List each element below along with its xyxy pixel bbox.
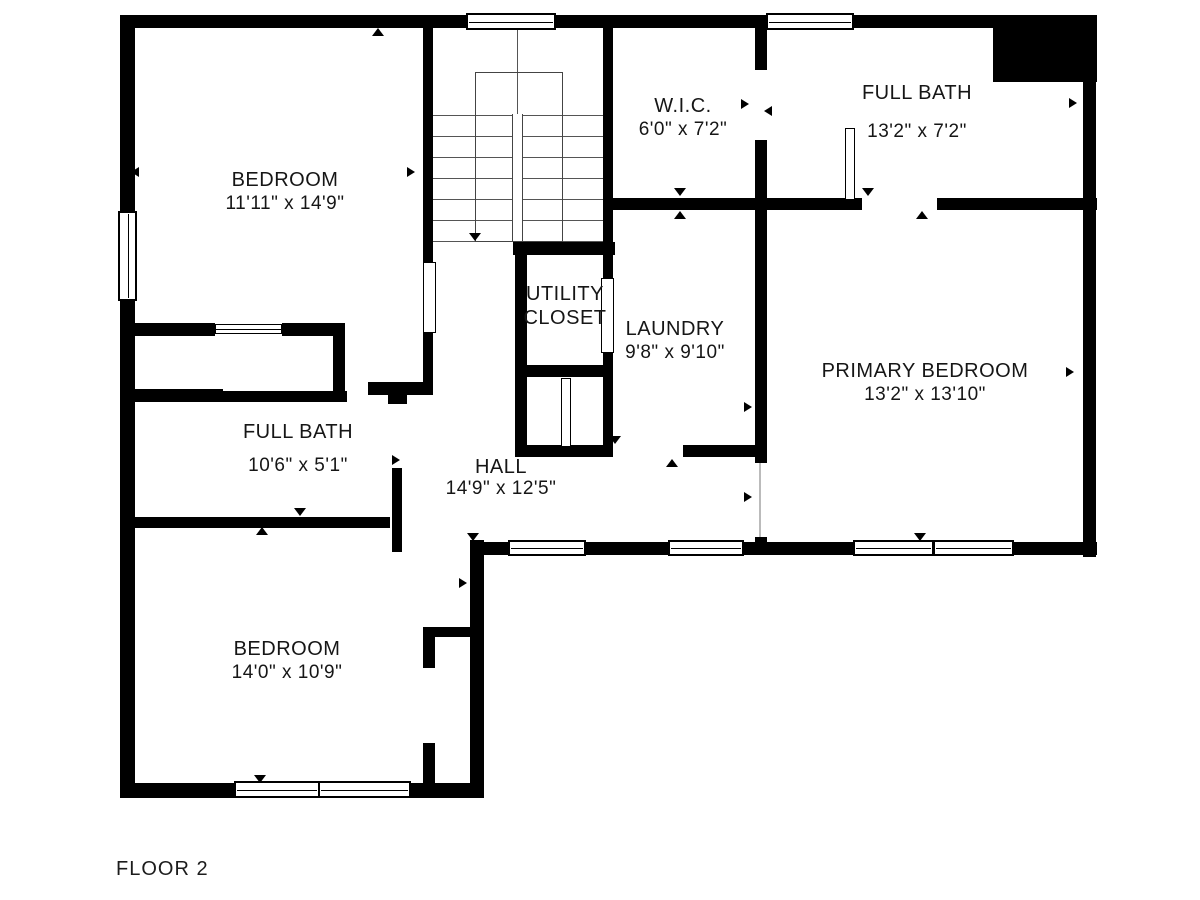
dimension-arrow: [764, 106, 772, 116]
room-label-full-bath-w: FULL BATH 10'6" x 5'1": [198, 420, 398, 478]
wall-utility-bottom: [515, 365, 613, 377]
dimension-arrow: [294, 508, 306, 516]
wall-wing-right: [470, 540, 484, 798]
floor-plan: BEDROOM 11'11" x 14'9" W.I.C. 6'0" x 7'2…: [0, 0, 1200, 900]
wall-primary-west-upper: [755, 210, 767, 463]
dimension-arrow: [674, 211, 686, 219]
room-name: W.I.C.: [603, 94, 763, 118]
room-name: LAUNDRY: [595, 317, 755, 341]
room-label-laundry: LAUNDRY 9'8" x 9'10": [595, 317, 755, 365]
door-leaf-hall-alcove: [561, 378, 571, 447]
wall-utility-west: [515, 242, 527, 453]
window: [508, 540, 586, 556]
room-dims: 9'8" x 9'10": [595, 341, 755, 365]
wall-sw-closet-upper: [423, 627, 435, 668]
wall-nw-closet-top-left: [133, 323, 215, 336]
wall-exterior-left: [120, 15, 135, 798]
wall-hall-junction-nib: [388, 395, 407, 404]
closet-slider-bedroom-nw: [215, 324, 282, 334]
room-label-bedroom-nw: BEDROOM 11'11" x 14'9": [165, 168, 405, 216]
room-name: UTILITY: [505, 282, 625, 306]
room-label-hall: HALL 14'9" x 12'5": [417, 456, 585, 500]
room-label-bedroom-sw: BEDROOM 14'0" x 10'9": [167, 637, 407, 685]
dimension-arrow: [758, 363, 766, 373]
wall-bath-south-east: [937, 198, 1097, 210]
wall-wic-bath-divider-upper: [755, 27, 767, 70]
wall-corner-block-ne: [993, 15, 1097, 82]
window: [466, 13, 556, 30]
dimension-arrow: [131, 167, 139, 177]
room-dims: 13'2" x 7'2": [817, 120, 1017, 144]
dimension-arrow: [1066, 367, 1074, 377]
room-dims: 13'2" x 13'10": [795, 383, 1055, 407]
stair-landing-outline: [475, 72, 563, 242]
room-name: BEDROOM: [167, 637, 407, 661]
room-name: HALL: [417, 456, 585, 478]
dimension-arrow: [122, 581, 130, 591]
wall-exterior-right: [1083, 15, 1096, 557]
wall-primary-west-stub: [755, 537, 767, 555]
room-label-full-bath-ne: FULL BATH 13'2" x 7'2": [817, 81, 1017, 144]
dimension-arrow: [256, 527, 268, 535]
wall-bath-south-west: [603, 198, 862, 210]
room-dims: 14'0" x 10'9": [167, 661, 407, 685]
dimension-arrow: [515, 404, 523, 414]
wall-stairwell-east: [603, 27, 613, 278]
room-dims: 14'9" x 12'5": [417, 478, 585, 500]
room-name: FULL BATH: [817, 81, 1017, 105]
wall-hall-junction-block: [368, 382, 433, 395]
dimension-arrow: [459, 578, 467, 588]
room-name: BEDROOM: [165, 168, 405, 192]
window: [234, 781, 320, 798]
wall-wbath-south: [120, 517, 390, 528]
room-dims: 11'11" x 14'9": [165, 192, 405, 216]
door-swing-arrow: [862, 188, 874, 196]
dimension-arrow: [1069, 98, 1077, 108]
door-swing-arrow: [666, 459, 678, 467]
stair-down-arrow-icon: [469, 233, 481, 241]
dimension-arrow: [254, 775, 266, 783]
dimension-arrow: [122, 448, 130, 458]
room-name: PRIMARY BEDROOM: [795, 359, 1055, 383]
wall-wic-bath-divider-lower: [755, 140, 767, 198]
room-dims: 6'0" x 7'2": [603, 118, 763, 142]
room-label-primary-bedroom: PRIMARY BEDROOM 13'2" x 13'10": [795, 359, 1055, 407]
wall-stairwell-west-upper: [423, 27, 433, 262]
window: [318, 781, 411, 798]
wall-sw-closet-lower: [423, 743, 435, 783]
window: [766, 13, 854, 30]
door-swing-arrow: [916, 211, 928, 219]
door-swing-arrow: [609, 436, 621, 444]
dimension-arrow: [674, 188, 686, 196]
door-swing-arrow: [744, 492, 752, 502]
dimension-arrow: [407, 167, 415, 177]
wall-sw-closet-nib: [435, 627, 473, 637]
wall-wbath-north-thin: [223, 391, 347, 402]
dimension-arrow: [372, 28, 384, 36]
room-name: FULL BATH: [198, 420, 398, 444]
dimension-arrow: [467, 533, 479, 541]
dimension-arrow: [914, 533, 926, 541]
door-leaf-bedroom-nw: [423, 262, 436, 333]
room-label-wic: W.I.C. 6'0" x 7'2": [603, 94, 763, 142]
wall-laundry-south-east: [683, 445, 755, 457]
wall-hall-west-stub: [392, 468, 402, 552]
window: [668, 540, 744, 556]
door-opening-primary-bedroom: [759, 463, 761, 537]
door-swing-arrow: [744, 402, 752, 412]
window: [853, 540, 934, 556]
floor-title: FLOOR 2: [116, 858, 209, 881]
wall-utility-top: [513, 242, 615, 255]
window: [933, 540, 1014, 556]
window: [118, 211, 137, 301]
room-dims: 10'6" x 5'1": [198, 454, 398, 478]
wall-wbath-north-thick: [120, 389, 223, 402]
